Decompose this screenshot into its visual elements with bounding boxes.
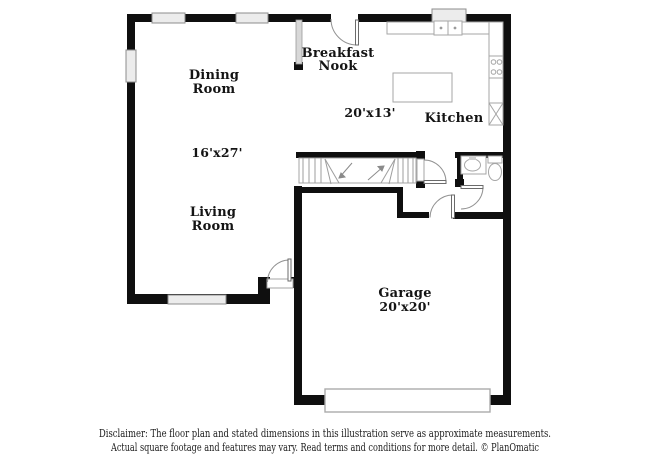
entry-door-leaf [288,259,291,281]
living-room-label-line2: Room [192,219,235,234]
living-room-dimensions: 16'x27' [191,145,242,160]
hall-closet-wall-horizontal [397,212,429,218]
toilet-tank [488,156,502,163]
kitchen-fixtures [387,21,503,125]
kitchen-dimensions: 20'x13' [344,105,395,120]
sink-drain-left [440,27,443,30]
window-top-1 [152,13,185,23]
kitchen-label: Kitchen [425,111,484,126]
living-room-label-line1: Living [190,205,236,220]
garage-entry-door-leaf [452,195,455,218]
bathroom-door-arc [461,187,483,209]
hall-bottom-wall [453,212,506,219]
stair-arrow-head-left [339,173,345,178]
nook-door-arc [331,19,357,45]
stair-newel-column [417,159,424,181]
dining-room-label-line1: Dining [189,68,239,83]
breakfast-nook-label-line2: Nook [318,59,358,74]
garage-dimensions: 20'x20' [379,299,430,314]
nook-door-leaf [356,20,359,45]
disclaimer: Disclaimer: The floor plan and stated di… [99,427,551,454]
stair-winder [325,159,339,183]
floor-plan-canvas: Dining Room Breakfast Nook 20'x13' Kitch… [0,0,650,473]
window-left-wall [126,50,136,82]
kitchen-sink-window [432,9,466,22]
dining-room-label-line2: Room [193,82,236,97]
stairwell-top-wall [296,152,425,158]
garage-bottom-wall-right [490,395,511,405]
stair-winder [389,159,395,184]
garage-entry-door-arc [430,195,453,218]
bathroom-fixtures [461,156,502,181]
garage-bottom-wall-left [294,395,325,405]
disclaimer-line1: Disclaimer: The floor plan and stated di… [99,427,551,440]
bath-faucet [469,157,476,160]
window-living-bottom [168,295,226,304]
staircase [299,158,416,184]
stair-winder [381,159,395,183]
toilet-bowl [489,164,502,181]
right-exterior-wall [503,14,511,405]
sink-drain-right [454,27,457,30]
kitchen-island [393,73,452,102]
bathroom-door-leaf [461,186,483,189]
stairwell-bottom-wall [296,187,403,193]
floor-plan-page: Dining Room Breakfast Nook 20'x13' Kitch… [0,0,650,473]
garage-left-wall [294,186,302,405]
garage-overhead-door [325,389,490,412]
landing-door-leaf [424,181,446,184]
landing-door-arc [424,160,446,182]
disclaimer-line2: Actual square footage and features may v… [110,441,539,454]
stair-winder [325,159,331,184]
window-top-2 [236,13,268,23]
